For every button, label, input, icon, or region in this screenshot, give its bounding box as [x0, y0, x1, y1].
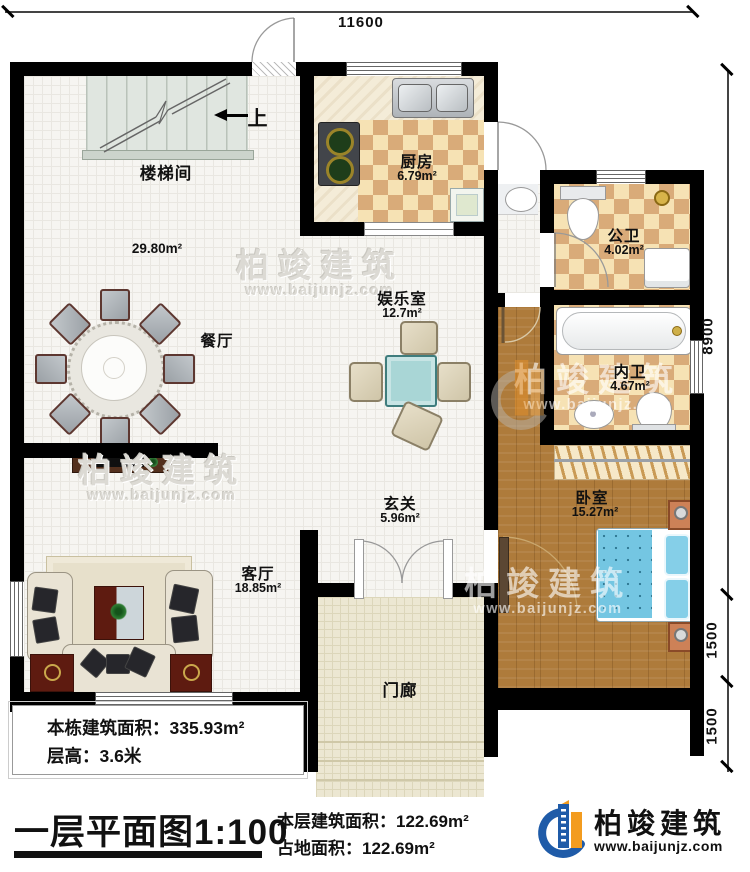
room-area-bedroom: 15.27m² — [572, 505, 619, 519]
dishwasher-top — [456, 194, 478, 216]
title-underline — [14, 851, 262, 858]
wardrobe-rod — [554, 459, 690, 462]
wall-top-right — [460, 62, 498, 76]
bathtub-faucet — [672, 326, 682, 336]
table-plant — [110, 603, 127, 620]
bath-cabinet — [644, 248, 690, 288]
brand-website: www.baijunjz.com — [594, 838, 723, 854]
door-arc-entry — [252, 18, 294, 62]
room-label-stairwell: 楼梯间 — [140, 160, 193, 184]
wall-bedroom-bottom — [497, 688, 690, 710]
window — [596, 170, 646, 184]
game-table — [385, 355, 437, 407]
wall-pubbath-left-a — [540, 184, 554, 233]
dining-table-center — [103, 357, 125, 379]
plan-title: 一层平面图1:100 — [14, 804, 289, 855]
wall-mid-a — [484, 76, 498, 122]
bathtub-basin — [562, 312, 686, 350]
room-area-living: 18.85m² — [235, 581, 282, 595]
end-table-ring — [183, 664, 200, 681]
wall-foyer-bottom-b — [448, 583, 498, 597]
nook-washbasin — [505, 187, 537, 212]
hallway-floor — [498, 307, 540, 688]
stair-arrow-line — [226, 114, 248, 117]
sofa-pillow — [31, 586, 58, 613]
floor-area-text: 本层建筑面积：122.69m² — [277, 808, 469, 835]
window — [346, 62, 462, 76]
stair-landing — [82, 150, 254, 160]
game-chair — [349, 362, 383, 402]
wall-bath-top-a — [540, 170, 596, 184]
entry-threshold — [252, 62, 296, 76]
wall-foyer-bottom-a — [316, 583, 356, 597]
floor-info: 本层建筑面积：122.69m² 占地面积：122.69m² — [277, 808, 469, 862]
room-area-public-bath: 4.02m² — [604, 243, 644, 257]
window — [10, 581, 24, 657]
kitchen-sink-basin — [398, 84, 432, 112]
sofa-pillow — [32, 616, 60, 644]
game-chair — [437, 362, 471, 402]
wall-innerbath-left — [540, 305, 554, 430]
game-chair — [400, 321, 438, 355]
porch-step — [316, 741, 484, 743]
land-area-text: 占地面积：122.69m² — [277, 835, 469, 862]
sofa-pillow — [169, 584, 200, 615]
room-area-kitchen: 6.79m² — [397, 169, 437, 183]
wall-right — [690, 170, 704, 756]
stair-up-label: 上 — [248, 102, 269, 131]
wall-top-mid — [296, 62, 346, 76]
floor-drain — [654, 190, 670, 206]
nightstand-knob — [674, 628, 688, 642]
wall-top-left — [10, 62, 252, 76]
door-frame-post — [354, 539, 364, 599]
stove-burner — [326, 156, 354, 184]
dining-chair — [35, 354, 67, 384]
wall-corridor-top — [484, 293, 505, 307]
dimension-seg-b-value: 1500 — [704, 707, 721, 744]
dimension-line-right — [727, 70, 729, 772]
room-area-foyer: 5.96m² — [380, 511, 420, 525]
wall-dining-living-divider — [24, 443, 218, 458]
wall-mid-b — [484, 170, 498, 530]
bed-pillow — [664, 534, 690, 576]
floor-height-text: 层高：3.6米 — [47, 742, 303, 770]
bedroom-door-opening — [484, 530, 498, 583]
bedroom-door-leaf — [499, 537, 509, 613]
bed-pillow — [664, 578, 690, 620]
dimension-seg-a-value: 1500 — [704, 621, 721, 658]
end-table-ring — [44, 664, 61, 681]
kitchen-door-opening — [484, 122, 498, 170]
bed-mattress — [598, 530, 652, 618]
room-label-dining: 餐厅 — [200, 329, 233, 351]
room-area-entertainment: 12.7m² — [382, 306, 422, 320]
wall-porch-column — [484, 583, 498, 757]
door-arc-kitchen — [498, 122, 546, 170]
room-area-dining: 29.80m² — [132, 241, 182, 256]
door-frame-post — [443, 539, 453, 599]
washbasin-drain — [590, 411, 596, 417]
porch-step — [316, 779, 484, 781]
dining-chair — [163, 354, 195, 384]
wall-bath-divider — [540, 290, 704, 305]
porch-step — [316, 760, 484, 762]
wardrobe — [554, 445, 692, 480]
building-info-box: 本栋建筑面积：335.93m² 层高：3.6米 — [12, 705, 304, 775]
kitchen-sink-basin — [436, 84, 468, 112]
dining-chair — [100, 289, 130, 321]
kitchen-sliding-door — [364, 222, 454, 236]
wall-innerbath-bottom — [540, 430, 690, 445]
wall-kitchen-bottom-a — [300, 222, 364, 236]
sofa-pillow — [171, 615, 200, 644]
dimension-right-value: 8900 — [700, 317, 717, 354]
wall-bath-top-b — [644, 170, 690, 184]
room-area-inner-bath: 4.67m² — [610, 379, 650, 393]
brand-logo-icon — [534, 798, 592, 862]
building-area-text: 本栋建筑面积：335.93m² — [47, 714, 303, 742]
floor-plan: 柏竣建筑 www.baijunjz.com 柏竣建筑 www.baijunjz.… — [0, 0, 750, 872]
wall-kitchen-left — [300, 76, 314, 222]
dimension-line-top — [5, 11, 693, 13]
brand-name: 柏竣建筑 — [594, 802, 726, 842]
stove-burner — [326, 128, 354, 156]
nightstand-knob — [674, 506, 688, 520]
plant — [148, 457, 158, 467]
dimension-top-value: 11600 — [338, 14, 384, 31]
tv — [94, 458, 144, 467]
room-label-porch: 门廊 — [383, 677, 418, 701]
